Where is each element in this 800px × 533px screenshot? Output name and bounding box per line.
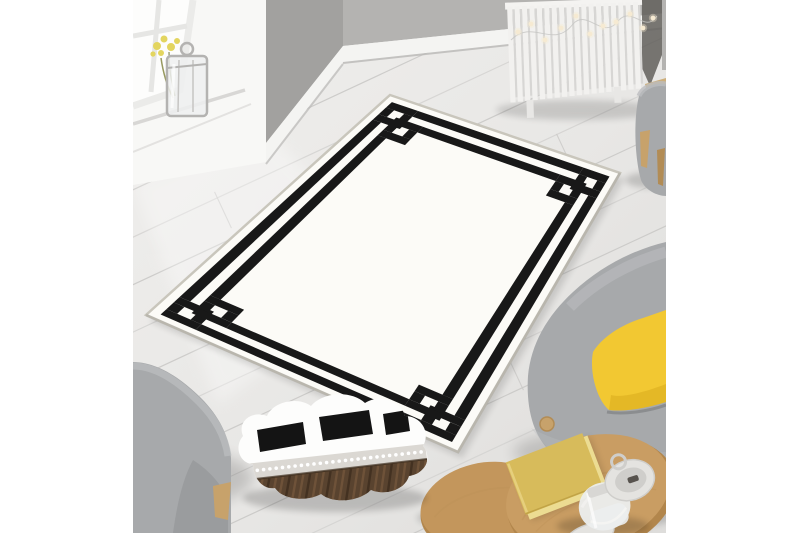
armchair-right-foot — [540, 417, 554, 431]
armchair-left-leg — [213, 482, 231, 520]
room-scene — [133, 0, 666, 533]
product-image-canvas — [0, 0, 800, 533]
product-photo — [133, 0, 666, 533]
